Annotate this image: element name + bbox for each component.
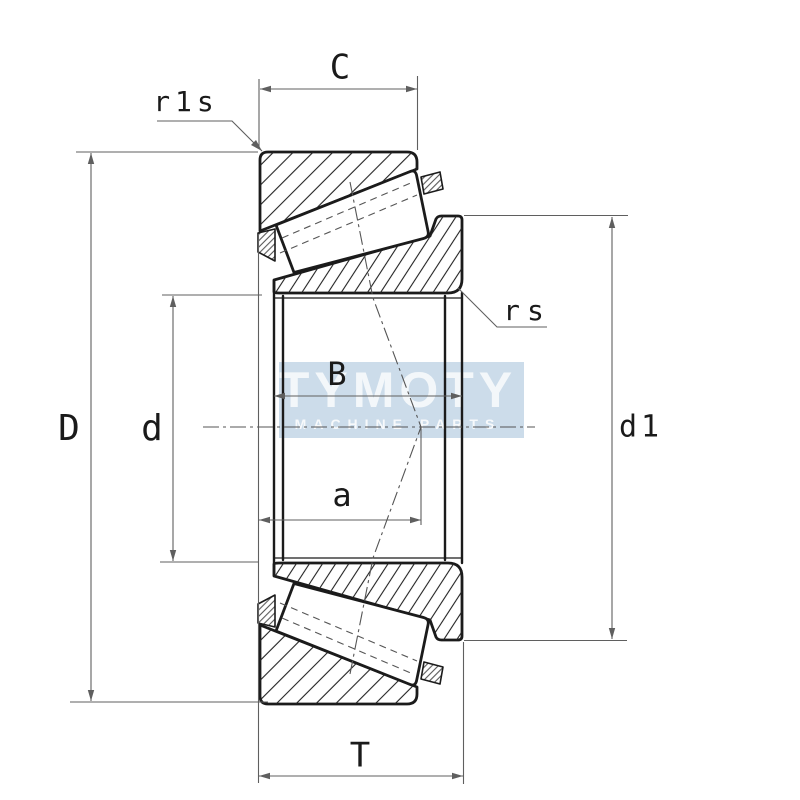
label-total-width: T xyxy=(350,736,370,776)
label-cone-corner-radius: rs xyxy=(503,294,551,327)
label-cone-width: B xyxy=(327,355,346,393)
label-cup-corner-radius: r1s xyxy=(153,85,219,118)
label-bore-diameter: d xyxy=(141,408,163,449)
drawing-canvas: TYMOTY MACHINE PARTS xyxy=(0,0,800,800)
watermark-tagline: MACHINE PARTS xyxy=(295,416,502,432)
bearing-technical-drawing: TYMOTY MACHINE PARTS xyxy=(0,0,800,800)
label-rib-diameter: d1 xyxy=(619,410,663,445)
label-cup-width: C xyxy=(330,48,350,88)
label-outer-diameter: D xyxy=(58,408,80,449)
label-load-center-distance: a xyxy=(332,476,351,514)
watermark-brand: TYMOTY xyxy=(279,362,517,418)
